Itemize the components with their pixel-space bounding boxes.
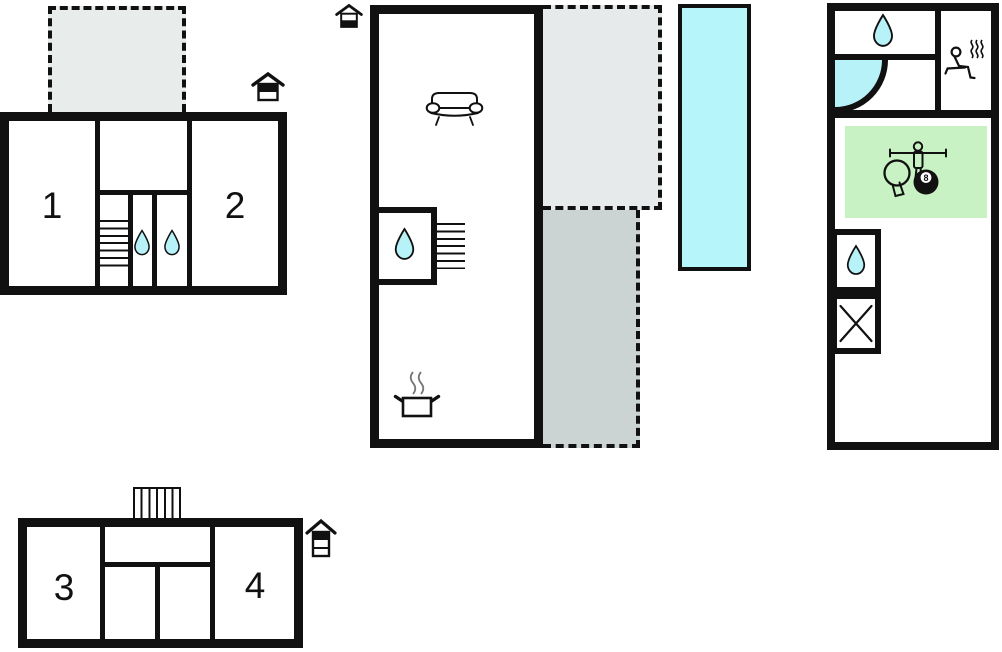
terrace-middle-dark [543,210,640,448]
house-upper-floor-icon [251,72,285,104]
stairs-icon [437,223,465,269]
wall [152,195,157,286]
table-tennis-foosball-billiards-icon: 8 [878,140,948,200]
room-label-4: 4 [215,566,295,606]
corner-bathtub-icon [835,60,935,110]
water-drop-icon [870,14,896,48]
room-label-3: 3 [27,568,101,608]
terrace-middle-light [543,5,662,210]
terrace-upper-left [48,6,186,112]
wall [835,110,991,118]
water-drop-icon [132,229,152,257]
house-ground-floor-icon [335,3,363,31]
swimming-pool [678,4,751,271]
wall [935,11,941,115]
floor-plan: 1 2 [0,0,1002,652]
stairs-icon [133,487,181,520]
sauna-icon [945,38,987,84]
room-label-2: 2 [192,186,278,226]
wall [379,207,437,213]
eight-ball-number: 8 [923,173,928,183]
wall [100,190,187,195]
wall [155,567,160,639]
water-drop-icon [844,245,868,276]
wall [379,279,437,285]
cooking-pot-icon [394,368,440,420]
sofa-icon [426,88,483,128]
cross-icon [837,299,875,348]
water-drop-icon [162,229,182,257]
house-three-level-icon [305,519,337,559]
stairs-icon [100,220,128,267]
room-label-1: 1 [9,186,95,226]
water-drop-icon [392,228,417,261]
